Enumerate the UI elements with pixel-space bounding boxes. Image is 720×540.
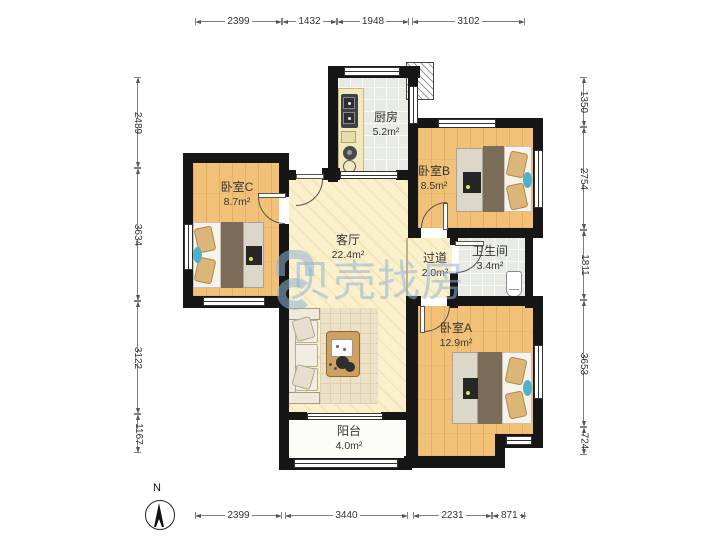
dimension-value: 3122 <box>133 344 143 370</box>
window <box>203 297 265 306</box>
table-tray <box>331 339 353 357</box>
wall-segment <box>328 66 338 182</box>
table-dot <box>329 363 332 366</box>
room-name: 卧室C <box>221 180 254 196</box>
dimension-value: 2489 <box>133 109 143 135</box>
dimension-value: 1811 <box>579 252 589 278</box>
dimension-top-1: 2399 <box>195 15 282 28</box>
dimension-value: 2399 <box>225 511 251 521</box>
room-area: 12.9m² <box>440 337 473 351</box>
dimension-right-5: 724 <box>577 427 590 455</box>
dimension-left-1: 2489 <box>131 77 144 168</box>
room-label-balcony: 阳台 4.0m² <box>336 424 363 453</box>
watermark-text: 贝壳找房 <box>289 247 465 309</box>
dimension-left-4: 1167 <box>131 414 144 453</box>
dimension-value: 1350 <box>579 89 589 115</box>
wall-segment <box>324 170 332 180</box>
wall-segment <box>396 170 418 180</box>
dimension-value: 3634 <box>133 221 143 247</box>
window <box>344 67 400 76</box>
arrow-right-icon <box>521 514 527 518</box>
sink-icon <box>343 146 357 160</box>
dimension-right-4: 3653 <box>577 300 590 427</box>
dimension-value: 3653 <box>579 350 589 376</box>
wall-segment <box>279 170 296 180</box>
window <box>534 345 543 399</box>
room-name: 阳台 <box>336 424 363 440</box>
headboard-accent <box>523 380 532 396</box>
bed-blanket <box>478 352 502 424</box>
room-area: 5.2m² <box>373 126 400 140</box>
stove-icon <box>341 94 358 128</box>
dimension-bottom-2: 3440 <box>285 509 408 522</box>
arrow-right-icon <box>276 514 282 518</box>
room-label-kitchen: 厨房 5.2m² <box>373 110 400 139</box>
room-name: 卧室A <box>440 321 473 337</box>
dimension-value: 1167 <box>133 421 143 447</box>
room-name: 厨房 <box>373 110 400 126</box>
toilet-icon <box>506 271 522 297</box>
teacup-icon <box>345 362 355 372</box>
room-area: 8.7m² <box>221 196 254 210</box>
window <box>184 224 193 270</box>
room-label-bedroom-b: 卧室B 8.5m² <box>418 164 450 193</box>
bed-blanket <box>221 222 243 288</box>
dimension-value: 1432 <box>296 17 322 27</box>
dimension-top-2: 1432 <box>282 15 337 28</box>
table-dot <box>334 367 337 370</box>
floor-plan: 2399 1432 1948 3102 2399 3440 2231 871 2… <box>0 0 720 540</box>
bed-blanket <box>483 146 504 212</box>
room-area: 3.4m² <box>472 260 508 274</box>
dimension-left-3: 3122 <box>131 301 144 414</box>
compass-north-label: N <box>153 482 161 494</box>
dimension-value: 3440 <box>333 511 359 521</box>
wall-segment <box>408 228 421 238</box>
dimension-right-1: 1350 <box>577 77 590 127</box>
room-area: 8.5m² <box>418 180 450 194</box>
wall-segment <box>279 296 289 422</box>
room-name: 卧室B <box>418 164 450 180</box>
wall-segment <box>183 153 289 163</box>
window <box>438 119 496 128</box>
room-label-bedroom-a: 卧室A 12.9m² <box>440 321 473 350</box>
balcony-door-threshold <box>307 413 383 420</box>
tv-panel-icon <box>246 246 262 265</box>
kitchen-threshold <box>340 171 398 179</box>
dimension-bottom-1: 2399 <box>195 509 282 522</box>
window <box>409 86 418 124</box>
counter-item <box>341 131 356 143</box>
dimension-bottom-4: 871 <box>492 509 525 522</box>
dimension-top-4: 3102 <box>412 15 525 28</box>
dimension-value: 2399 <box>225 17 251 27</box>
window <box>506 436 532 445</box>
window <box>534 150 543 208</box>
headboard-accent <box>523 172 532 188</box>
headboard-accent <box>193 247 202 263</box>
dimension-value: 871 <box>499 511 520 521</box>
dimension-left-2: 3634 <box>131 168 144 301</box>
dimension-value: 1948 <box>360 17 386 27</box>
room-label-bathroom: 卫生间 3.4m² <box>472 244 508 273</box>
arrow-right-icon <box>519 20 525 24</box>
floor-bedroom-a <box>418 434 505 456</box>
room-area: 4.0m² <box>336 440 363 454</box>
dimension-value: 2754 <box>579 165 589 191</box>
tv-panel-icon <box>463 172 481 193</box>
sofa-armrest <box>284 392 320 404</box>
room-name: 卫生间 <box>472 244 508 260</box>
arrow-right-icon <box>402 514 408 518</box>
dimension-bottom-3: 2231 <box>413 509 492 522</box>
arrow-right-icon <box>403 20 409 24</box>
dimension-right-3: 1811 <box>577 230 590 300</box>
room-label-bedroom-c: 卧室C 8.7m² <box>221 180 254 209</box>
wall-segment <box>406 296 418 468</box>
window <box>294 459 398 468</box>
dimension-value: 3102 <box>455 17 481 27</box>
dimension-value: 2231 <box>439 511 465 521</box>
wall-segment <box>279 412 307 420</box>
dimension-right-2: 2754 <box>577 127 590 230</box>
wall-segment <box>404 456 505 468</box>
dimension-top-3: 1948 <box>337 15 409 28</box>
compass-needle-notch <box>156 519 162 527</box>
arrow-down-icon <box>136 447 140 453</box>
dimension-value: 724 <box>579 431 589 452</box>
